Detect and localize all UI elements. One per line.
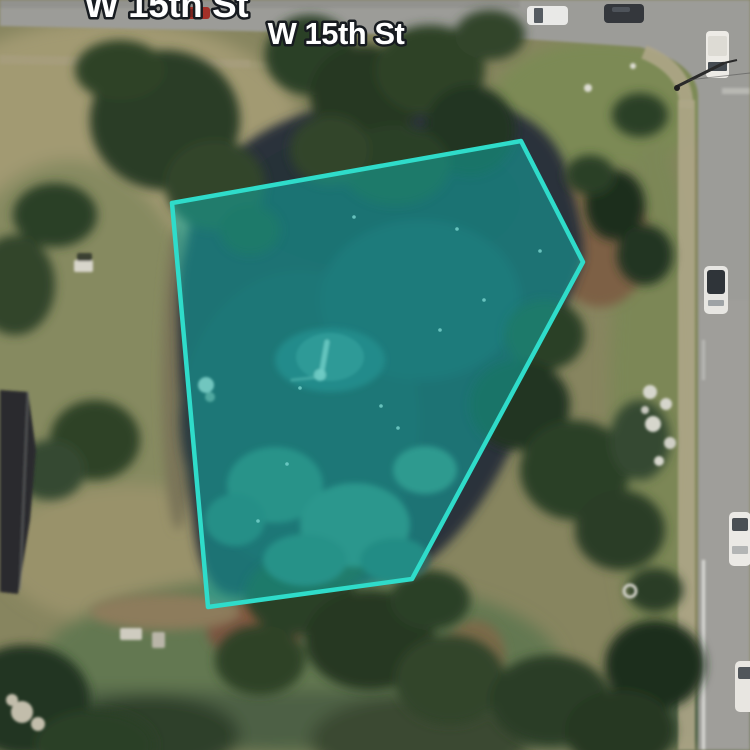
vehicle-dark-car-top: [604, 4, 644, 23]
vehicle-white-car-top: [527, 6, 568, 25]
street-label-second: W 15th St: [268, 16, 405, 51]
street-label-top: W 15th St: [84, 0, 248, 25]
vehicle-white-car-bottom-right: [735, 661, 750, 712]
vehicle-white-car-right-low: [729, 512, 750, 566]
satellite-map-canvas: W 15th St W 15th St: [0, 0, 750, 750]
satellite-map-viewport[interactable]: W 15th St W 15th St: [0, 0, 750, 750]
vehicle-white-car-right-mid: [704, 266, 728, 314]
